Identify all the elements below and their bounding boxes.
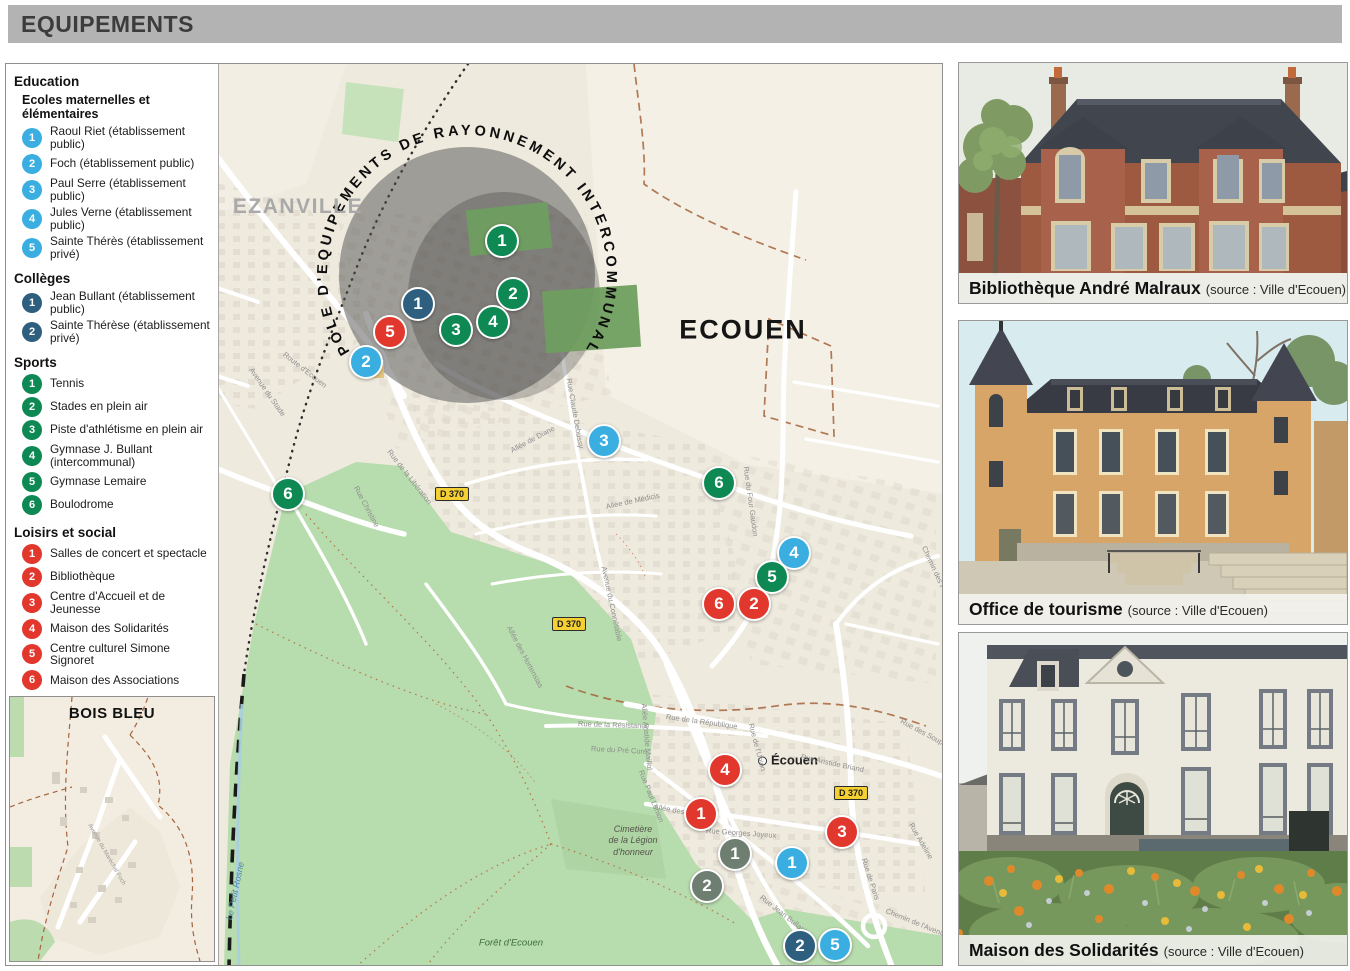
map-marker-sports-3: 3 [439, 313, 473, 347]
photo-bibliotheque: Bibliothèque André Malraux(source : Vill… [958, 62, 1348, 304]
label-ecouen: ECOUEN [679, 315, 807, 346]
photo-title: Maison des Solidarités [969, 940, 1159, 960]
legend-badge: 6 [22, 670, 42, 690]
legend-subheading: Ecoles maternelles et élémentaires [22, 93, 212, 121]
legend-item: 1 Raoul Riet (établissement public) [22, 125, 212, 151]
map-marker-tourisme-1: 1 [718, 837, 752, 871]
photo-maison-solidarites: Maison des Solidarités(source : Ville d'… [958, 632, 1348, 966]
legend-item: 3 Piste d'athlétisme en plein air [22, 420, 212, 440]
map-marker-education-2: 2 [349, 345, 383, 379]
legend-item-label: Bibliothèque [50, 570, 115, 583]
road-sign-d370: D 370 [552, 617, 586, 631]
legend-badge: 6 [22, 495, 42, 515]
legend-item-label: Jean Bullant (établissement public) [50, 290, 212, 316]
map-marker-sports-2: 2 [496, 277, 530, 311]
legend-item-label: Piste d'athlétisme en plein air [50, 423, 203, 436]
legend-item: 6 Boulodrome [22, 495, 212, 515]
photo-maison-solidarites-art [959, 633, 1347, 965]
legend-item: 2 Foch (établissement public) [22, 154, 212, 174]
legend-badge: 4 [22, 446, 42, 466]
road-sign-d370: D 370 [834, 786, 868, 800]
photo-office-tourisme: Office de tourisme(source : Ville d'Ecou… [958, 320, 1348, 625]
legend-item: 6 Maison des Associations [22, 670, 212, 690]
photo-title: Bibliothèque André Malraux [969, 278, 1201, 298]
legend-item-label: Maison des Associations [50, 674, 179, 687]
legend-item: 2 Sainte Thérèse (établissement privé) [22, 319, 212, 345]
legend-section-loisirs: Loisirs et social 1 Salles de concert et… [14, 525, 212, 691]
legend-item-label: Sainte Thérèse (établissement privé) [50, 319, 212, 345]
map-marker-colleges-2: 2 [783, 929, 817, 963]
legend-badge: 2 [22, 322, 42, 342]
legend-badge: 3 [22, 593, 42, 613]
map-marker-education-1: 1 [775, 846, 809, 880]
legend-item-label: Raoul Riet (établissement public) [50, 125, 212, 151]
legend-section-sports: Sports 1 Tennis 2 Stades en plein air [14, 355, 212, 515]
map: POLE D'EQUIPEMENTS DE RAYONNEMENT INTERC… [5, 63, 943, 966]
photo-source: (source : Ville d'Ecouen) [1206, 282, 1346, 297]
photo-source: (source : Ville d'Ecouen) [1128, 603, 1268, 618]
legend-item: 2 Bibliothèque [22, 567, 212, 587]
legend-item: 1 Salles de concert et spectacle [22, 544, 212, 564]
map-marker-loisirs-2: 2 [737, 587, 771, 621]
legend-item-label: Gymnase Lemaire [50, 475, 146, 488]
legend-item: 1 Tennis [22, 374, 212, 394]
map-marker-loisirs-5: 5 [373, 315, 407, 349]
map-marker-tourisme-2: 2 [690, 869, 724, 903]
legend-item-label: Foch (établissement public) [50, 157, 194, 170]
legend-item-label: Centre culturel Simone Signoret [50, 642, 212, 668]
road-sign-d370: D 370 [435, 487, 469, 501]
photo-bibliotheque-art [959, 63, 1347, 303]
legend-item-label: Gymnase J. Bullant (intercommunal) [50, 443, 212, 469]
legend-item: 2 Stades en plein air [22, 397, 212, 417]
legend-item: 5 Sainte Thérès (établissement privé) [22, 235, 212, 261]
legend-item: 1 Jean Bullant (établissement public) [22, 290, 212, 316]
page-header: EQUIPEMENTS [8, 5, 1342, 43]
legend-item-label: Tennis [50, 377, 84, 390]
photo-caption: Maison des Solidarités(source : Ville d'… [959, 935, 1347, 965]
legend-badge: 4 [22, 209, 42, 229]
map-marker-sports-1: 1 [485, 224, 519, 258]
legend-heading: Loisirs et social [14, 525, 212, 540]
legend-badge: 5 [22, 644, 42, 664]
photo-title: Office de tourisme [969, 599, 1123, 619]
map-marker-loisirs-4: 4 [708, 753, 742, 787]
map-marker-education-5: 5 [818, 928, 852, 962]
legend-item-label: Salles de concert et spectacle [50, 547, 207, 560]
legend-badge: 2 [22, 154, 42, 174]
label-forest: Forêt d'Ecouen [479, 938, 543, 949]
legend-badge: 3 [22, 420, 42, 440]
legend-item-label: Paul Serre (établissement public) [50, 177, 212, 203]
legend-badge: 5 [22, 472, 42, 492]
photo-caption: Office de tourisme(source : Ville d'Ecou… [959, 594, 1347, 624]
legend-item-label: Maison des Solidarités [50, 622, 169, 635]
legend-badge: 3 [22, 180, 42, 200]
map-marker-loisirs-6: 6 [702, 587, 736, 621]
legend-badge: 1 [22, 128, 42, 148]
photo-office-tourisme-art [959, 321, 1347, 624]
map-marker-education-3: 3 [587, 424, 621, 458]
photo-source: (source : Ville d'Ecouen) [1164, 944, 1304, 959]
legend-badge: 1 [22, 374, 42, 394]
legend-heading: Sports [14, 355, 212, 370]
photo-caption: Bibliothèque André Malraux(source : Vill… [959, 273, 1347, 303]
legend-item: 4 Maison des Solidarités [22, 619, 212, 639]
legend-item-label: Jules Verne (établissement public) [50, 206, 212, 232]
legend-item-label: Stades en plein air [50, 400, 148, 413]
legend-item: 3 Paul Serre (établissement public) [22, 177, 212, 203]
legend-heading: Education [14, 74, 212, 89]
legend-badge: 2 [22, 567, 42, 587]
map-marker-sports-6: 6 [271, 477, 305, 511]
legend-item: 5 Centre culturel Simone Signoret [22, 642, 212, 668]
legend-badge: 2 [22, 397, 42, 417]
inset-map-bois-bleu: Avenue du Maréchal Foch BOIS BLEU [9, 696, 215, 962]
inset-title: BOIS BLEU [69, 705, 155, 722]
label-ezanville: EZANVILLE [233, 195, 363, 219]
page-title: EQUIPEMENTS [8, 5, 1342, 43]
legend-heading: Collèges [14, 271, 212, 286]
legend-item: 3 Centre d'Accueil et de Jeunesse [22, 590, 212, 616]
legend-item: 4 Gymnase J. Bullant (intercommunal) [22, 443, 212, 469]
legend-badge: 1 [22, 544, 42, 564]
map-marker-sports-6: 6 [702, 466, 736, 500]
map-marker-loisirs-1: 1 [684, 797, 718, 831]
legend-panel: Education Ecoles maternelles et élémenta… [6, 64, 219, 966]
inset-map-art: Avenue du Maréchal Foch [10, 697, 214, 961]
legend-badge: 1 [22, 293, 42, 313]
legend-item: 4 Jules Verne (établissement public) [22, 206, 212, 232]
page: EQUIPEMENTS [0, 0, 1350, 971]
legend-badge: 5 [22, 238, 42, 258]
legend-section-colleges: Collèges 1 Jean Bullant (établissement p… [14, 271, 212, 345]
legend-item-label: Sainte Thérès (établissement privé) [50, 235, 212, 261]
legend-section-education: Education Ecoles maternelles et élémenta… [14, 74, 212, 261]
legend-item-label: Boulodrome [50, 498, 114, 511]
map-marker-colleges-1: 1 [401, 287, 435, 321]
legend-badge: 4 [22, 619, 42, 639]
map-marker-sports-4: 4 [476, 305, 510, 339]
map-marker-loisirs-3: 3 [825, 815, 859, 849]
legend-item: 5 Gymnase Lemaire [22, 472, 212, 492]
legend-item-label: Centre d'Accueil et de Jeunesse [50, 590, 212, 616]
label-cemetery: Cimetière de la Légion d'honneur [608, 824, 657, 858]
